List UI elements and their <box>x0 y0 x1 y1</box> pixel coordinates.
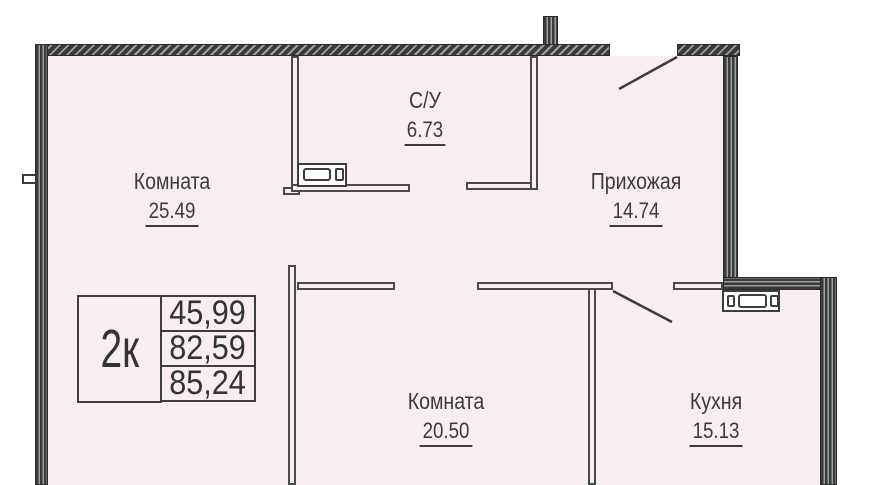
apartment-type-label: 2к <box>100 318 139 380</box>
room-name: С/У <box>383 87 468 113</box>
room-area: 25.49 <box>146 199 198 227</box>
kitchen-fixture-right-knob <box>770 295 779 307</box>
room-label-living-1: Комната 25.49 <box>104 168 240 227</box>
exterior-wall-top-left-segment <box>35 44 610 56</box>
room-name: Прихожая <box>568 168 704 194</box>
room-area: 15.13 <box>690 419 742 447</box>
corridor-wall-right-segment <box>673 282 723 290</box>
room-area: 6.73 <box>404 118 446 146</box>
bathroom-fixture-tap <box>335 168 344 181</box>
legend-area-cell-3: 85,24 <box>160 365 256 402</box>
bedroom-wall-left <box>288 265 296 485</box>
bathroom-wall-bottom-right <box>466 182 536 190</box>
floor-area-kitchen <box>723 288 820 485</box>
legend-area-cell-1: 45,99 <box>160 295 256 332</box>
bathroom-fixture-basin <box>303 168 331 181</box>
kitchen-fixture-basin <box>738 294 767 308</box>
exterior-wall-right-lower <box>820 277 837 485</box>
bathroom-fixture <box>297 163 347 187</box>
room-name: Комната <box>104 168 240 194</box>
exterior-wall-left <box>35 44 48 485</box>
legend-type-cell: 2к <box>77 295 162 403</box>
kitchen-divider-wall <box>588 288 596 485</box>
kitchen-fixture <box>722 290 780 312</box>
room-label-hallway: Прихожая 14.74 <box>568 168 704 227</box>
bathroom-wall-right <box>530 56 538 190</box>
room-label-bathroom: С/У 6.73 <box>383 87 468 146</box>
legend-area-value-2: 82,59 <box>170 329 247 368</box>
left-wall-tie-stub <box>22 174 37 184</box>
legend-values-column: 45,99 82,59 85,24 <box>160 295 256 403</box>
kitchen-fixture-left-knob <box>727 295 735 307</box>
legend-area-cell-2: 82,59 <box>160 330 256 367</box>
corridor-wall-left-segment <box>297 282 395 290</box>
legend-area-value-3: 85,24 <box>170 364 247 403</box>
room-name: Комната <box>378 388 514 414</box>
exterior-wall-right-upper <box>723 56 738 284</box>
room-area: 20.50 <box>420 419 472 447</box>
room-label-kitchen: Кухня 15.13 <box>648 388 784 447</box>
floorplan-canvas: 2к 45,99 82,59 85,24 Комната 25.49 С/У 6… <box>0 0 871 485</box>
room-name: Кухня <box>648 388 784 414</box>
room-area: 14.74 <box>610 199 662 227</box>
exterior-wall-top-right-segment <box>677 44 740 56</box>
legend-table: 2к 45,99 82,59 85,24 <box>77 295 256 403</box>
vent-shaft-stub <box>543 16 558 45</box>
room-label-living-2: Комната 20.50 <box>378 388 514 447</box>
legend-area-value-1: 45,99 <box>170 294 247 333</box>
